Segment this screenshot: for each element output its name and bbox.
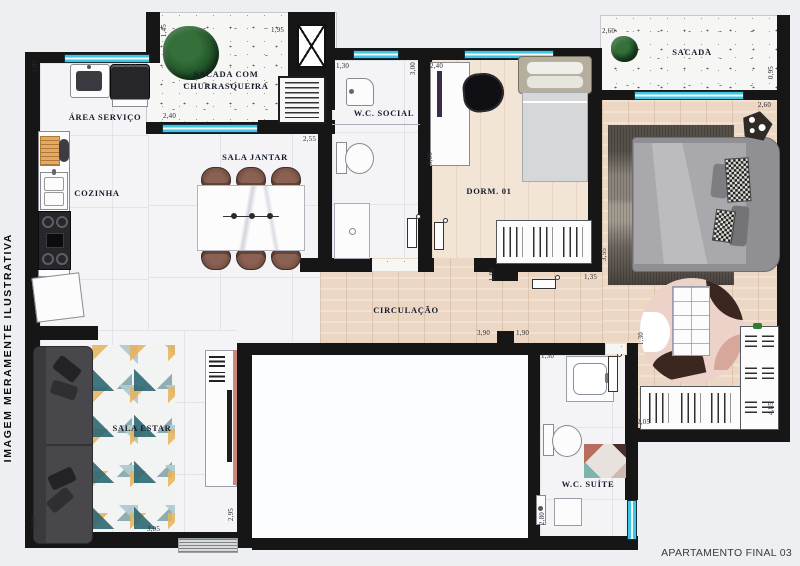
kitchen-cabinet: [31, 272, 84, 323]
dimension-label: 2,95: [227, 508, 235, 521]
room-label-sala-estar: SALA ESTAR: [112, 423, 171, 433]
dimension-label: 1,95: [271, 26, 284, 34]
cube-shelf: [672, 286, 710, 356]
dimension-label: 2,05: [637, 418, 650, 426]
dorm-door-leaf: [434, 222, 444, 250]
wc-social-threshold: [372, 259, 418, 271]
wardrobe-rail: [533, 227, 553, 257]
dimension-label: 2,55: [303, 135, 316, 143]
shower-mosaic: [584, 444, 626, 478]
wc-social-toilet: [345, 143, 374, 174]
sink-basin-1: [44, 177, 64, 191]
room-label-circulacao: CIRCULAÇÃO: [373, 305, 439, 315]
room-label-wc-social: W.C. SOCIAL: [354, 108, 415, 118]
faucet-icon: [52, 169, 56, 175]
room-label-dorm-01: DORM. 01: [466, 186, 511, 196]
balcony-plant: [611, 36, 638, 62]
houndstooth-pillow: [724, 157, 751, 203]
sofa-seat-divider: [46, 444, 92, 446]
kitchen-tray: [59, 139, 69, 162]
column-pier-void: [497, 331, 514, 343]
duvet-fold: [644, 143, 710, 264]
wardrobe-rail: [681, 393, 701, 423]
single-bed-headboard: [518, 56, 592, 94]
room-label-sacada-churrasqueira-1: SACADA COM: [194, 69, 259, 79]
burner: [56, 216, 68, 228]
dimension-label: 3,05: [147, 525, 160, 533]
decor-dot: [749, 128, 755, 134]
dimension-label: 3,00: [409, 62, 417, 75]
wall-passage-corner: [300, 258, 332, 272]
wall-void-top: [237, 343, 535, 355]
floorplan-canvas: ÁREA SERVIÇO COZINHA SACADA COM CHURRASQ…: [0, 0, 800, 566]
shelf-plant: [753, 323, 762, 329]
monitor: [437, 71, 442, 117]
room-label-wc-suite: W.C. SUÍTE: [562, 479, 615, 489]
wardrobe-rail: [503, 227, 523, 257]
stove: [38, 211, 71, 270]
wall-wcsocial-bottom: [332, 258, 372, 272]
pillow: [47, 466, 77, 491]
pillow: [46, 486, 75, 513]
window-wc-suite: [627, 500, 637, 540]
sofa-backrest: [34, 347, 46, 543]
dimension-label: 3,90: [477, 329, 490, 337]
dimension-label: 3,60: [30, 516, 38, 529]
dish-rack: [40, 136, 60, 166]
wall-suite-bottom: [627, 428, 790, 442]
wall-estar-right: [237, 343, 252, 548]
candle-icon: [249, 213, 255, 219]
ac-vent: [178, 538, 238, 553]
laundry-basin: [76, 71, 102, 91]
dimension-label: 3,95: [31, 60, 39, 73]
dimension-label: 1,00: [488, 268, 496, 281]
pillow: [526, 75, 584, 89]
window-wc-social: [353, 50, 399, 59]
clothes-stack: [745, 367, 757, 379]
dimension-label: 1,45: [160, 24, 168, 37]
dimension-label: 2,60: [602, 27, 615, 35]
dimension-label: 2,60: [758, 101, 771, 109]
stove-knob-panel: [46, 233, 64, 248]
window-sala-jantar: [162, 124, 258, 133]
dimension-label: 2,80: [538, 512, 546, 525]
living-rug: [92, 345, 175, 530]
console-speaker: [209, 372, 225, 382]
wc-social-sink: [346, 78, 374, 106]
dimension-label: 1,35: [584, 273, 597, 281]
dimension-label: 3,00: [426, 152, 434, 165]
dimension-label: 3,55: [600, 248, 608, 261]
room-label-cozinha: COZINHA: [74, 188, 120, 198]
wall-sacada-right: [777, 15, 790, 96]
faucet-icon: [349, 89, 354, 94]
window-area-servico: [64, 54, 150, 63]
dimension-label: 2,40: [430, 62, 443, 70]
watermark: IMAGEM MERAMENTE ILUSTRATIVA: [2, 233, 14, 462]
candle-icon: [267, 213, 273, 219]
wall-divider-pier: [418, 258, 434, 272]
room-label-sacada-churrasqueira-2: CHURRASQUEIRA: [183, 81, 268, 91]
room-label-area-servico: ÁREA SERVIÇO: [69, 112, 142, 122]
blanket-fold: [523, 101, 587, 103]
sofa: [33, 346, 93, 544]
shower-tray: [334, 203, 370, 259]
void-area: [252, 355, 528, 538]
wc-social-divider: [332, 124, 420, 125]
wc-suite-door-leaf: [608, 356, 618, 392]
dimension-label: 1,30: [637, 332, 645, 345]
dimension-label: 1,90: [516, 329, 529, 337]
rug-shape: [706, 278, 744, 320]
laundry-sink: [70, 64, 110, 98]
dimension-label: 4,85: [767, 402, 775, 415]
drain-icon: [349, 228, 356, 235]
suite-sink-counter: [566, 356, 614, 402]
footer-label: APARTAMENTO FINAL 03: [661, 547, 792, 559]
decor-dot: [758, 123, 766, 131]
room-label-sacada: SACADA: [672, 47, 712, 57]
candle-icon: [231, 213, 237, 219]
dimension-label: 1,30: [541, 352, 554, 360]
single-bed: [522, 92, 588, 182]
burner: [42, 253, 54, 265]
wall-void-bottom: [252, 538, 540, 550]
dimension-label: 2,40: [163, 112, 176, 120]
washer-controls: [112, 99, 148, 107]
pillow: [526, 61, 584, 75]
faucet-icon: [87, 65, 91, 69]
kitchen-sink: [40, 172, 68, 210]
wardrobe-rail: [563, 227, 583, 257]
wall-wcsuite-bottom: [528, 536, 638, 550]
suite-sink-basin: [573, 363, 607, 395]
decor-dot: [748, 116, 755, 123]
bbq-grill: [278, 76, 326, 124]
clothes-stack: [745, 401, 757, 413]
clothes-stack: [762, 367, 774, 379]
tv-wood-panel: [233, 350, 237, 485]
burner: [42, 216, 54, 228]
wardrobe-rail: [649, 393, 669, 423]
dimension-label: 1,75: [124, 63, 137, 71]
wardrobe-rail: [711, 393, 731, 423]
sink-basin-2: [44, 192, 64, 206]
suite-door-leaf: [532, 279, 556, 289]
suite-toilet: [552, 425, 582, 457]
shower-head-dot: [538, 506, 543, 511]
tv: [227, 390, 232, 462]
dimension-label: 0,95: [767, 66, 775, 79]
wc-suite-threshold: [606, 344, 626, 354]
pillow: [49, 379, 78, 400]
wall-cozinha-stub: [25, 326, 98, 340]
dimension-label: 1,30: [336, 62, 349, 70]
wc-social-door-leaf: [407, 218, 417, 248]
dining-table: [197, 185, 305, 251]
room-label-sala-jantar: SALA JANTAR: [222, 152, 288, 162]
dorm-wardrobe: [496, 220, 592, 264]
console-speaker: [209, 355, 225, 367]
pillow: [52, 355, 82, 384]
burner: [56, 253, 68, 265]
clothes-stack: [762, 335, 774, 347]
shower-bench: [554, 498, 582, 526]
dorm-desk: [430, 62, 470, 166]
elevator-x-icon: [297, 24, 326, 68]
clothes-stack: [745, 335, 757, 347]
wardrobe-hangers: [640, 386, 742, 430]
window-suite: [634, 91, 744, 100]
